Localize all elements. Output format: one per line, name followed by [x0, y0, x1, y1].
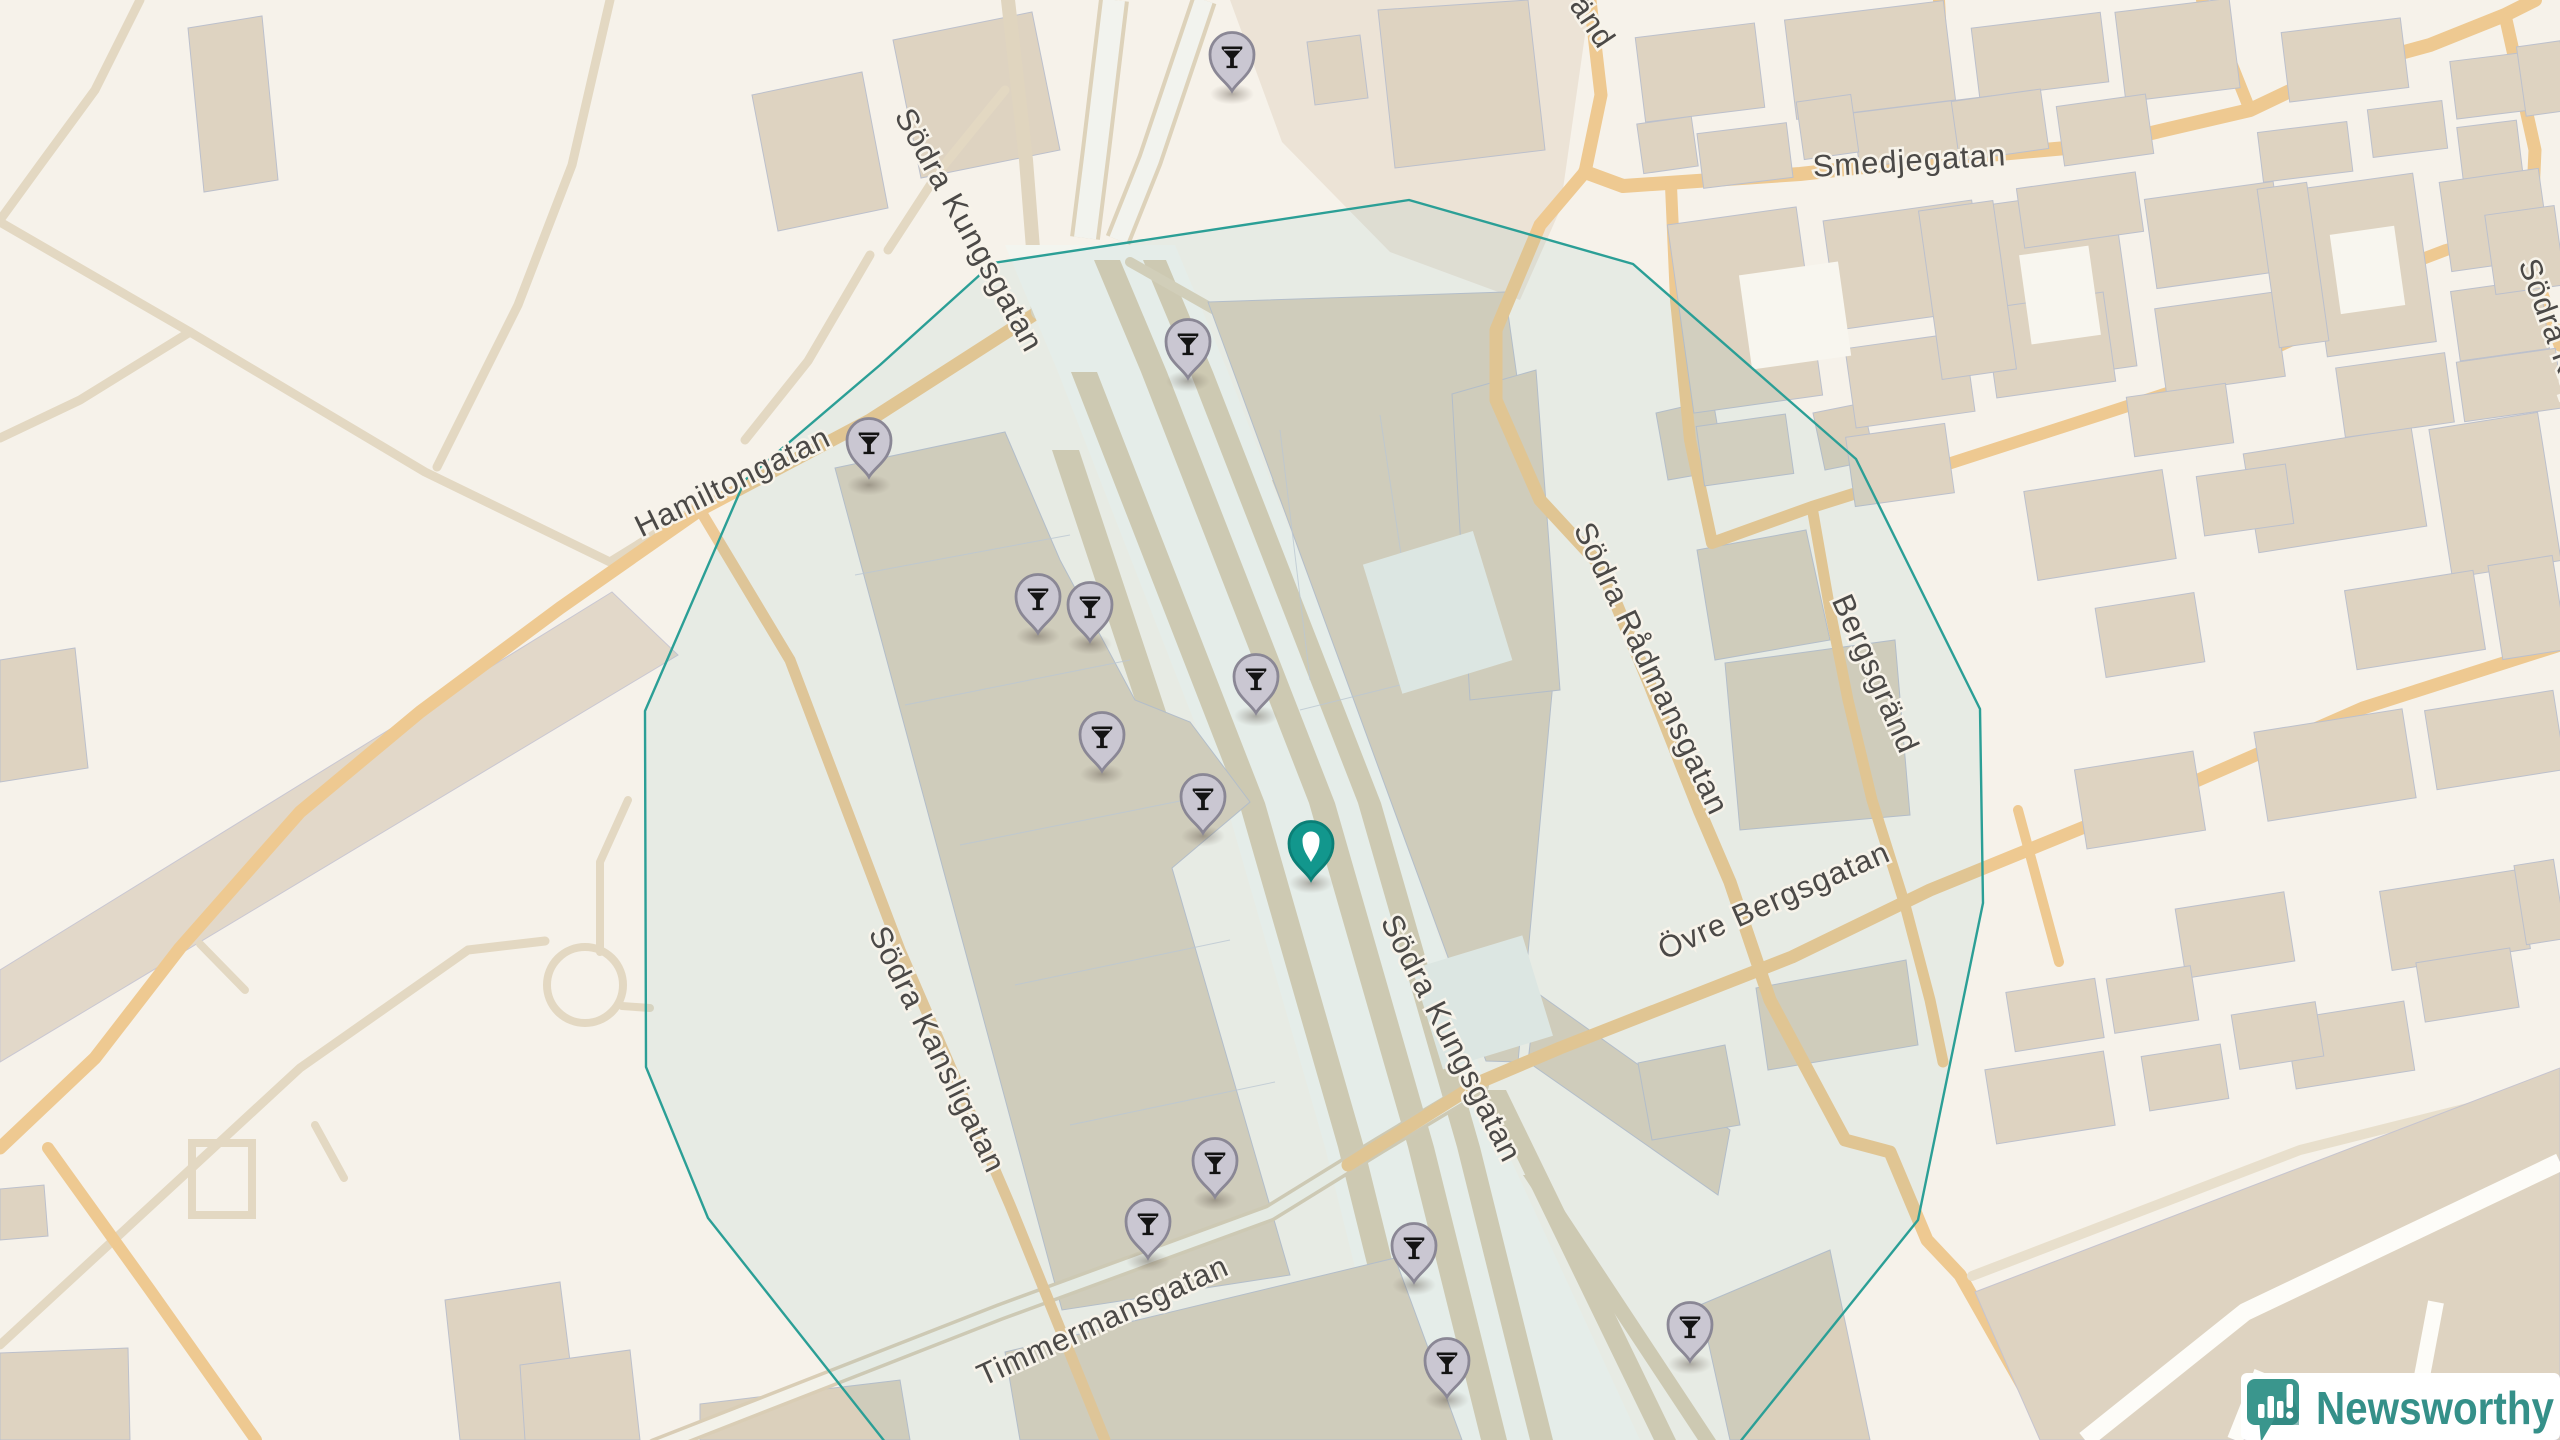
- svg-text:Newsworthy: Newsworthy: [2316, 1382, 2554, 1434]
